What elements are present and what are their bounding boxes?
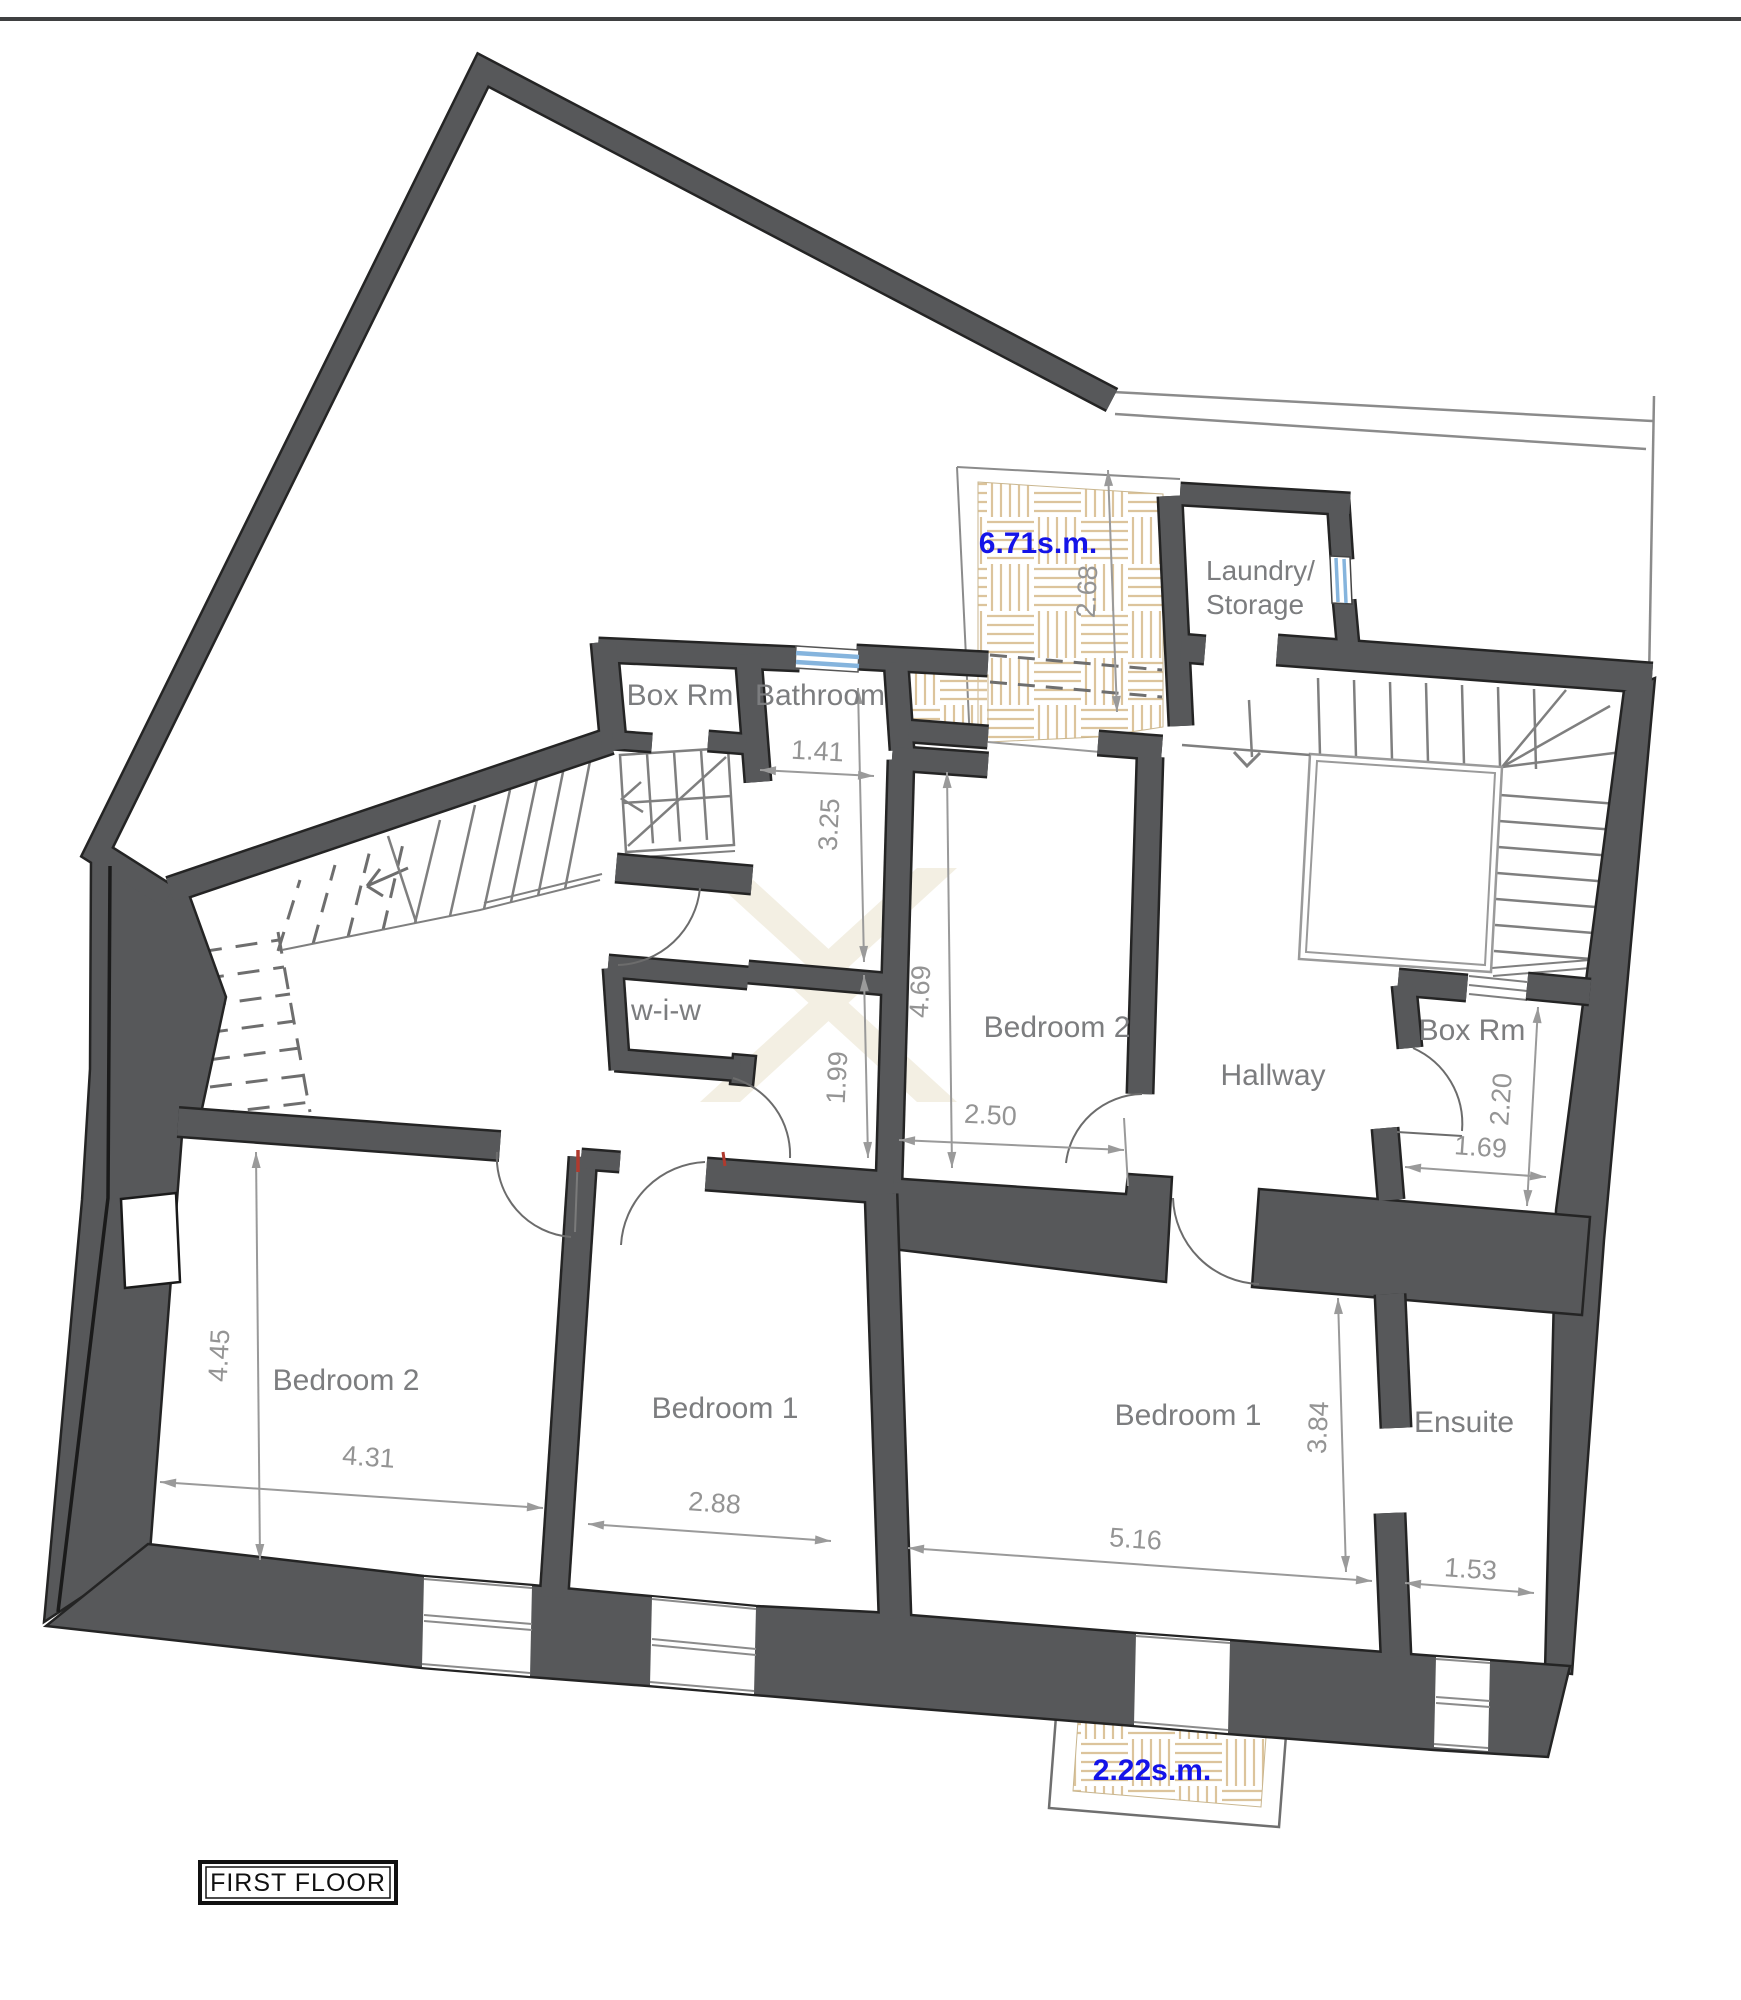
svg-text:5.16: 5.16 <box>1108 1522 1163 1556</box>
svg-text:Hallway: Hallway <box>1220 1059 1325 1092</box>
svg-text:Laundry/: Laundry/ <box>1206 555 1315 586</box>
svg-text:FIRST FLOOR: FIRST FLOOR <box>210 1869 386 1897</box>
svg-text:4.31: 4.31 <box>341 1440 396 1474</box>
svg-text:Bathroom: Bathroom <box>755 679 885 712</box>
svg-text:3.25: 3.25 <box>813 797 846 851</box>
svg-text:1.41: 1.41 <box>790 735 844 768</box>
svg-text:2.88: 2.88 <box>687 1486 742 1520</box>
svg-text:2.20: 2.20 <box>1484 1072 1518 1127</box>
svg-text:1.99: 1.99 <box>821 1050 854 1104</box>
svg-text:Box Rm: Box Rm <box>1419 1014 1526 1047</box>
svg-text:Bedroom 2: Bedroom 2 <box>984 1011 1131 1044</box>
svg-text:1.53: 1.53 <box>1443 1552 1498 1586</box>
svg-text:4.69: 4.69 <box>904 964 937 1018</box>
svg-text:Ensuite: Ensuite <box>1414 1406 1514 1439</box>
svg-text:3.84: 3.84 <box>1302 1400 1335 1454</box>
svg-text:Bedroom 1: Bedroom 1 <box>1115 1399 1262 1432</box>
svg-text:1.69: 1.69 <box>1453 1130 1508 1164</box>
svg-text:w-i-w: w-i-w <box>630 994 701 1027</box>
svg-text:6.71s.m.: 6.71s.m. <box>979 527 1097 560</box>
svg-text:4.45: 4.45 <box>203 1328 236 1382</box>
svg-text:2.68: 2.68 <box>1071 564 1104 618</box>
svg-text:Bedroom 2: Bedroom 2 <box>273 1364 420 1397</box>
svg-text:Bedroom 1: Bedroom 1 <box>652 1392 799 1425</box>
svg-text:2.22s.m.: 2.22s.m. <box>1093 1754 1211 1787</box>
svg-text:Box Rm: Box Rm <box>627 679 734 712</box>
svg-text:2.50: 2.50 <box>963 1099 1017 1132</box>
svg-text:Storage: Storage <box>1206 589 1304 620</box>
